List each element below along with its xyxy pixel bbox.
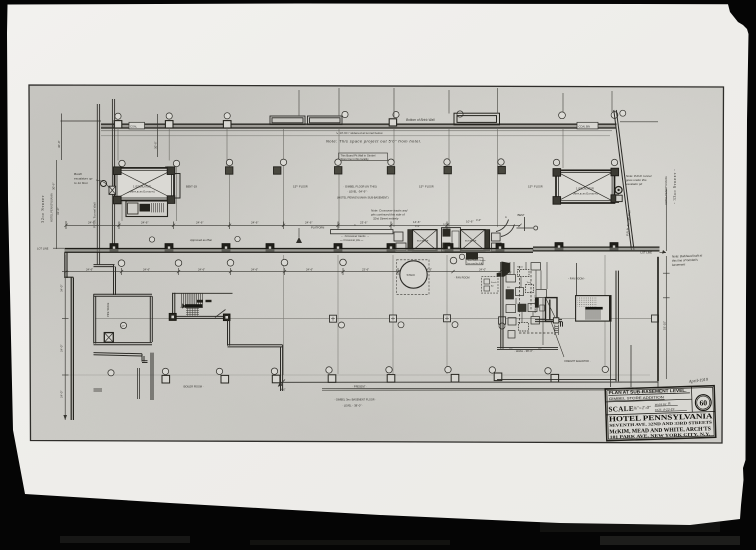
svg-text:F.D.: F.D.	[507, 287, 511, 289]
svg-text:STACK: STACK	[407, 273, 416, 277]
svg-text:24'-6": 24'-6"	[143, 267, 150, 271]
svg-text:53'-10": 53'-10"	[663, 321, 667, 330]
svg-text:· LEVEL -34'-9" ·: · LEVEL -34'-9" ·	[347, 190, 368, 194]
svg-text:be used for F.A.: be used for F.A.	[468, 262, 484, 265]
svg-text:24'-6": 24'-6"	[251, 221, 258, 225]
svg-text:4'-0": 4'-0"	[281, 390, 286, 392]
svg-text:LOT LINE: LOT LINE	[37, 246, 49, 250]
svg-text:LOT LINE: LOT LINE	[641, 251, 653, 255]
svg-text:to 1st floor: to 1st floor	[74, 181, 89, 185]
svg-text:23'-6": 23'-6"	[362, 268, 369, 272]
svg-text:24'-0": 24'-0"	[60, 391, 64, 398]
svg-text:⅛"=1'-0": ⅛"=1'-0"	[633, 405, 651, 411]
svg-text:24'-6": 24'-6"	[141, 221, 148, 225]
svg-text:Heater: Heater	[517, 266, 524, 269]
svg-text:1 ESCALATOR: 1 ESCALATOR	[133, 185, 151, 189]
svg-text:ELEVATOR: ELEVATOR	[465, 240, 477, 243]
svg-text:10'-6": 10'-6"	[466, 220, 473, 224]
svg-text:15º- FLOOR: 15º- FLOOR	[528, 185, 543, 189]
svg-text:COAL: COAL	[130, 124, 138, 128]
svg-text:15º- FLOOR: 15º- FLOOR	[293, 185, 308, 189]
svg-text:PLATFORM: PLATFORM	[311, 225, 324, 229]
svg-text:(REPLACES ELEVAT'R): (REPLACES ELEVAT'R)	[573, 193, 598, 196]
svg-text:30'-6": 30'-6"	[154, 141, 158, 149]
svg-text:A: A	[505, 215, 507, 219]
svg-text:24'-0": 24'-0"	[479, 268, 486, 272]
svg-text:24'-6": 24'-6"	[251, 267, 258, 271]
svg-text:· GIMBEL 3RD BASEMENT FLOOR ·: · GIMBEL 3RD BASEMENT FLOOR ·	[334, 397, 376, 401]
svg-text:10'-6": 10'-6"	[443, 223, 450, 227]
svg-text:- 33RD STREET -: - 33RD STREET -	[672, 169, 677, 204]
svg-text:· LEVEL - 38'-0" ·: · LEVEL - 38'-0" ·	[342, 404, 363, 408]
svg-text:(REPLACES ELEVAT'R): (REPLACES ELEVAT'R)	[130, 191, 155, 194]
svg-text:HOTEL PENNSYLVANIA: HOTEL PENNSYLVANIA	[50, 193, 54, 222]
svg-text:4'-0": 4'-0"	[476, 218, 481, 222]
svg-text:32'-0": 32'-0"	[56, 208, 60, 215]
svg-text:· PRESENT ·: · PRESENT ·	[352, 384, 367, 388]
svg-text:Note: This space project out 5: Note: This space project out 5'0" from h…	[326, 139, 422, 144]
svg-text:· GIMBEL FLOOR (IN THIS): · GIMBEL FLOOR (IN THIS)	[343, 185, 377, 189]
svg-text:24'-6": 24'-6"	[88, 221, 95, 225]
svg-text:A: A	[354, 223, 356, 227]
svg-text:14'-6": 14'-6"	[413, 220, 420, 224]
svg-text:← Crossover tracks →: ← Crossover tracks →	[341, 234, 369, 238]
svg-text:· FAN ROOM: · FAN ROOM	[454, 275, 470, 279]
svg-text:FREIGHT ELEVATOR ·: FREIGHT ELEVATOR ·	[565, 359, 591, 363]
svg-text:24'-6": 24'-6"	[86, 267, 93, 271]
svg-text:30'-6": 30'-6"	[52, 183, 56, 190]
svg-text:BENT-19: BENT-19	[186, 184, 197, 188]
svg-text:Bottom of Brick Wall: Bottom of Brick Wall	[406, 118, 435, 122]
svg-text:34'-0": 34'-0"	[60, 285, 64, 292]
svg-text:— Crossover pits —: — Crossover pits —	[339, 238, 364, 242]
svg-text:BENT: BENT	[518, 213, 525, 217]
svg-text:60: 60	[699, 398, 707, 407]
svg-text:4'-0": 4'-0"	[415, 224, 420, 228]
svg-text:Booth: Booth	[74, 172, 82, 176]
svg-text:23'-6": 23'-6"	[360, 220, 367, 224]
svg-text:30'-0": 30'-0"	[57, 140, 61, 148]
svg-text:↳ 13'-6¾" widened at tunnel be: ↳ 13'-6¾" widened at tunnel below	[336, 131, 383, 135]
svg-text:escalator pit: escalator pit	[626, 182, 642, 186]
svg-text:Fresh: Fresh	[491, 281, 497, 284]
svg-text:COAL BIN: COAL BIN	[579, 124, 591, 128]
svg-text:Store line in this locality: Store line in this locality	[341, 157, 370, 161]
svg-text:32ND STREET: 32ND STREET	[40, 194, 45, 223]
svg-text:escalators up: escalators up	[74, 177, 93, 181]
svg-text:32nd Street entirely: 32nd Street entirely	[373, 217, 399, 221]
svg-text:24'-0": 24'-0"	[60, 345, 64, 352]
svg-text:24'-6": 24'-6"	[196, 221, 203, 225]
svg-text:basement: basement	[672, 262, 685, 266]
svg-text:24'-6": 24'-6"	[198, 267, 205, 271]
svg-text:1 ESCALATOR: 1 ESCALATOR	[576, 187, 594, 191]
svg-text:SCALE: SCALE	[608, 405, 634, 414]
svg-text:ELEVATOR: ELEVATOR	[417, 240, 429, 243]
svg-text:15º- FLOOR: 15º- FLOOR	[419, 185, 434, 189]
svg-text:BOILER ROOM ·: BOILER ROOM ·	[184, 385, 204, 389]
svg-text:Pump: Pump	[506, 272, 512, 274]
svg-text:24'-6": 24'-6"	[305, 221, 312, 225]
svg-text:24'-6": 24'-6"	[306, 268, 313, 272]
svg-text:Approved as Plan: Approved as Plan	[189, 238, 213, 242]
svg-text:Air: Air	[491, 284, 494, 287]
svg-text:(HOTEL PENNSYLVANIA SUB-BASEME: (HOTEL PENNSYLVANIA SUB-BASEMENT)	[337, 196, 389, 200]
svg-text:B.: B.	[668, 401, 671, 405]
